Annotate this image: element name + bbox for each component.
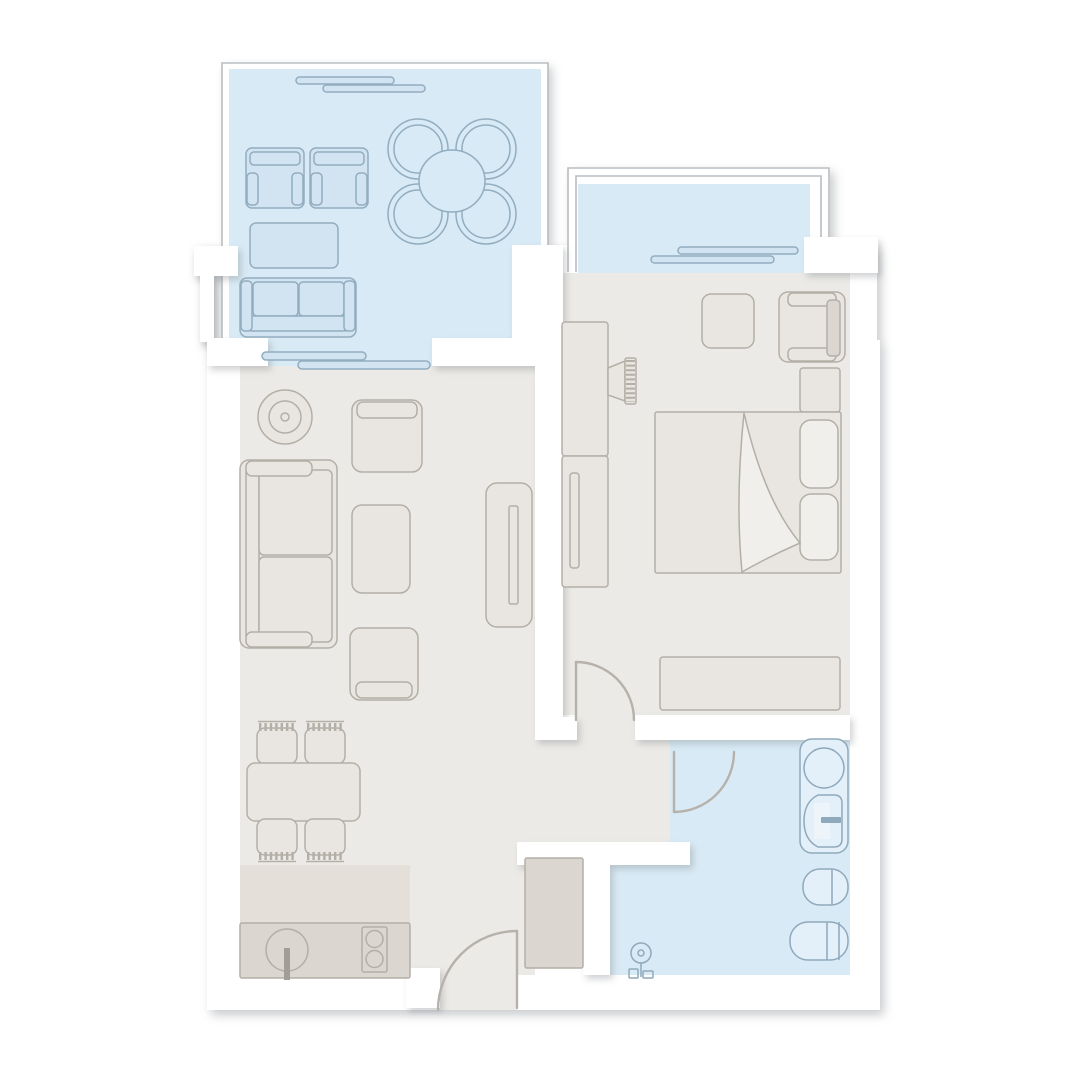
kitchen-backsplash <box>240 865 410 923</box>
sliding-door-balcony-top-b <box>323 85 425 92</box>
wall-entrance-pier <box>406 968 440 1008</box>
sliding-door-bedroom-a <box>678 247 798 254</box>
room-entrance-recess <box>438 975 517 1010</box>
double-bed <box>655 412 841 573</box>
dresser <box>660 657 840 710</box>
wardrobe <box>562 322 608 587</box>
bidet <box>790 922 848 960</box>
kitchen <box>240 865 410 980</box>
sliding-door-living-a <box>262 352 366 360</box>
wall-living-balcony-right <box>432 338 535 366</box>
balcony-armchair-2 <box>310 148 368 208</box>
wall-bedroom-balcony-pier <box>804 237 878 273</box>
sliding-door-balcony-top-a <box>296 77 394 84</box>
dining-table <box>247 763 360 821</box>
dining-chair-bottom-2 <box>305 819 345 862</box>
vanity-faucet <box>821 817 841 823</box>
armchair-top <box>352 400 422 472</box>
floor-lamp <box>258 390 312 444</box>
wall-bedroom-bathroom <box>635 715 850 740</box>
tv-sideboard <box>486 483 532 627</box>
room-bedroom-door-pass <box>575 715 635 740</box>
nightstand <box>800 368 840 412</box>
dining-chair-top-2 <box>305 722 345 765</box>
balcony-loveseat <box>240 278 356 337</box>
balcony-coffee-table <box>250 223 338 268</box>
balcony-armchair-1 <box>246 148 304 208</box>
pillow-1 <box>800 420 838 488</box>
floor-plan-canvas <box>0 0 1080 1080</box>
round-table-top <box>419 150 485 212</box>
dining-chair-bottom-1 <box>257 819 297 862</box>
sofa <box>240 460 337 648</box>
entry-closet <box>525 858 583 968</box>
wall-bathroom-left <box>583 842 610 975</box>
floor-plan <box>0 0 1080 1080</box>
sliding-door-living-b <box>298 361 430 369</box>
wall-left-pier-top <box>194 246 238 276</box>
dining-chair-top-1 <box>257 722 297 765</box>
wall-living-balcony-left <box>207 338 268 366</box>
wall-left-strip-top <box>200 276 214 342</box>
toilet <box>803 869 848 905</box>
washbasin-vanity <box>800 739 848 853</box>
coffee-table <box>352 505 410 593</box>
bedroom-armchair <box>779 292 845 362</box>
room-hallway <box>535 740 670 842</box>
ottoman-armchair <box>350 628 418 700</box>
side-stool <box>702 294 754 348</box>
sliding-door-bedroom-b <box>651 256 774 263</box>
pillow-2 <box>800 494 838 560</box>
